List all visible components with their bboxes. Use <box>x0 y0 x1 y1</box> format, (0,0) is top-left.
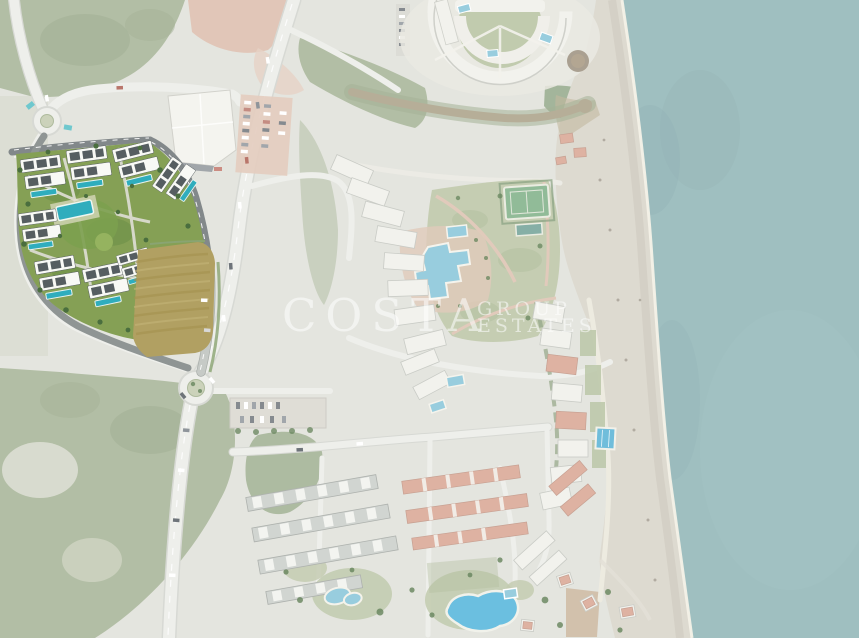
aerial-photo: COSTA GROUP ESTATES <box>0 0 859 638</box>
